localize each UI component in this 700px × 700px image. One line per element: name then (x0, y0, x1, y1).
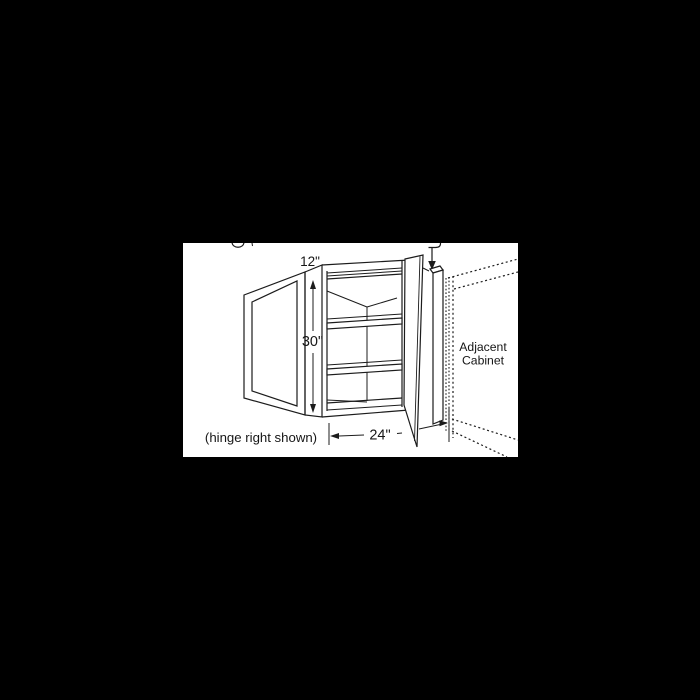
cropped-title-fragments (232, 243, 441, 248)
dimension-width: 24" (329, 408, 449, 445)
cabinet-line-drawing: 30" 12" 24" (hinge right shown) Adjacent… (183, 243, 518, 457)
blind-panel (244, 272, 305, 415)
hinge-note-label: (hinge right shown) (205, 430, 317, 445)
digit-bottom-fragment (427, 243, 441, 248)
cabinet-interior (327, 291, 397, 402)
open-door (404, 255, 423, 447)
adjacent-cabinet-label-line2: Cabinet (462, 354, 505, 368)
screenshot-root: { "window": { "background_color": "#0000… (0, 0, 700, 700)
filler-strip (430, 266, 443, 424)
adjacent-cabinet-label-line1: Adjacent (459, 340, 507, 354)
depth-dimension-label: 12" (300, 254, 320, 269)
hinge-dotted-strip (446, 277, 449, 431)
blind-panel-inner (252, 281, 297, 406)
letter-descender-fragment (232, 243, 244, 247)
down-arrow-icon (428, 247, 436, 270)
shelf-2 (327, 360, 402, 375)
shelf-1 (327, 314, 402, 329)
width-dimension-label: 24" (369, 428, 390, 444)
face-frame (322, 260, 409, 417)
height-dimension-label: 30" (302, 334, 323, 350)
diagram-panel: 30" 12" 24" (hinge right shown) Adjacent… (183, 243, 518, 457)
blind-panel-outer (244, 272, 305, 415)
cabinet-top-corner-line (423, 268, 429, 271)
adjacent-cabinet-label: Adjacent Cabinet (459, 340, 507, 368)
tick-fragment (252, 243, 253, 246)
